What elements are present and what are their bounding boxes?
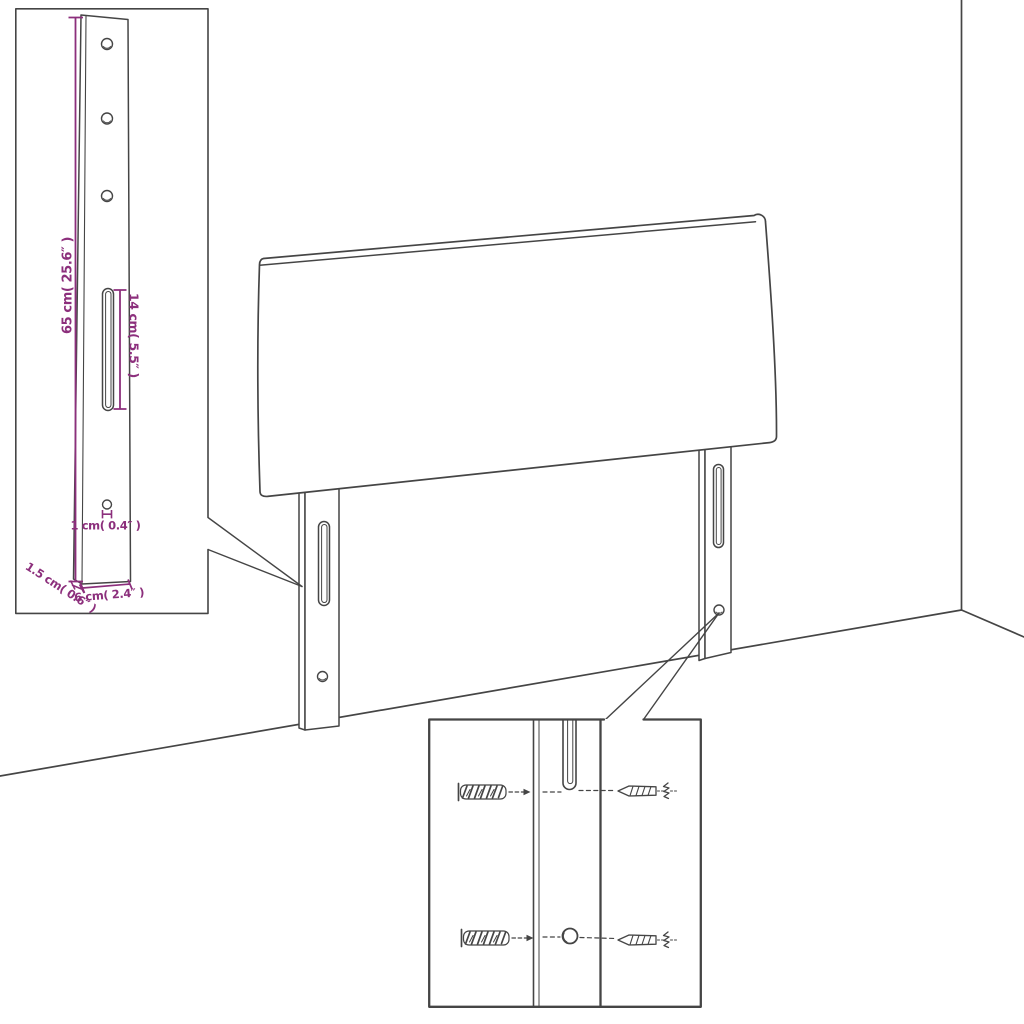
floor-line-right [962, 610, 1024, 637]
left-leg-side-face [299, 482, 305, 730]
right-leg-slot [714, 465, 724, 548]
inset-background [428, 719, 702, 1008]
inset-mounting-detail [428, 719, 702, 1008]
leader-lines-mounting-detail [606, 613, 720, 720]
leader-line [208, 518, 302, 587]
headboard [258, 214, 777, 730]
headboard-left-leg [299, 479, 339, 730]
dim-label-hole-size: 1 cm( 0.4″ ) [71, 519, 141, 533]
diagram-svg: 65 cm( 25.6″ ) 14 cm( 5.5″ ) 1 cm( 0.4″ … [0, 0, 1024, 1024]
left-leg-slot-outer [319, 522, 330, 606]
leg-post-drawing [74, 15, 131, 584]
dim-label-leg-height: 65 cm( 25.6″ ) [61, 237, 76, 334]
leader-line [606, 613, 720, 720]
leader-line [644, 613, 720, 720]
dim-label-slot-length: 14 cm( 5.5″ ) [127, 293, 142, 378]
leader-lines-leg-detail [208, 518, 302, 587]
leader-line [208, 550, 302, 587]
left-leg-slot [319, 522, 330, 606]
inset-leg-detail: 65 cm( 25.6″ ) 14 cm( 5.5″ ) 1 cm( 0.4″ … [15, 8, 208, 616]
right-leg-slot-outer [714, 465, 724, 548]
product-diagram: 65 cm( 25.6″ ) 14 cm( 5.5″ ) 1 cm( 0.4″ … [0, 0, 1024, 1024]
post-slot-outer [103, 289, 114, 411]
